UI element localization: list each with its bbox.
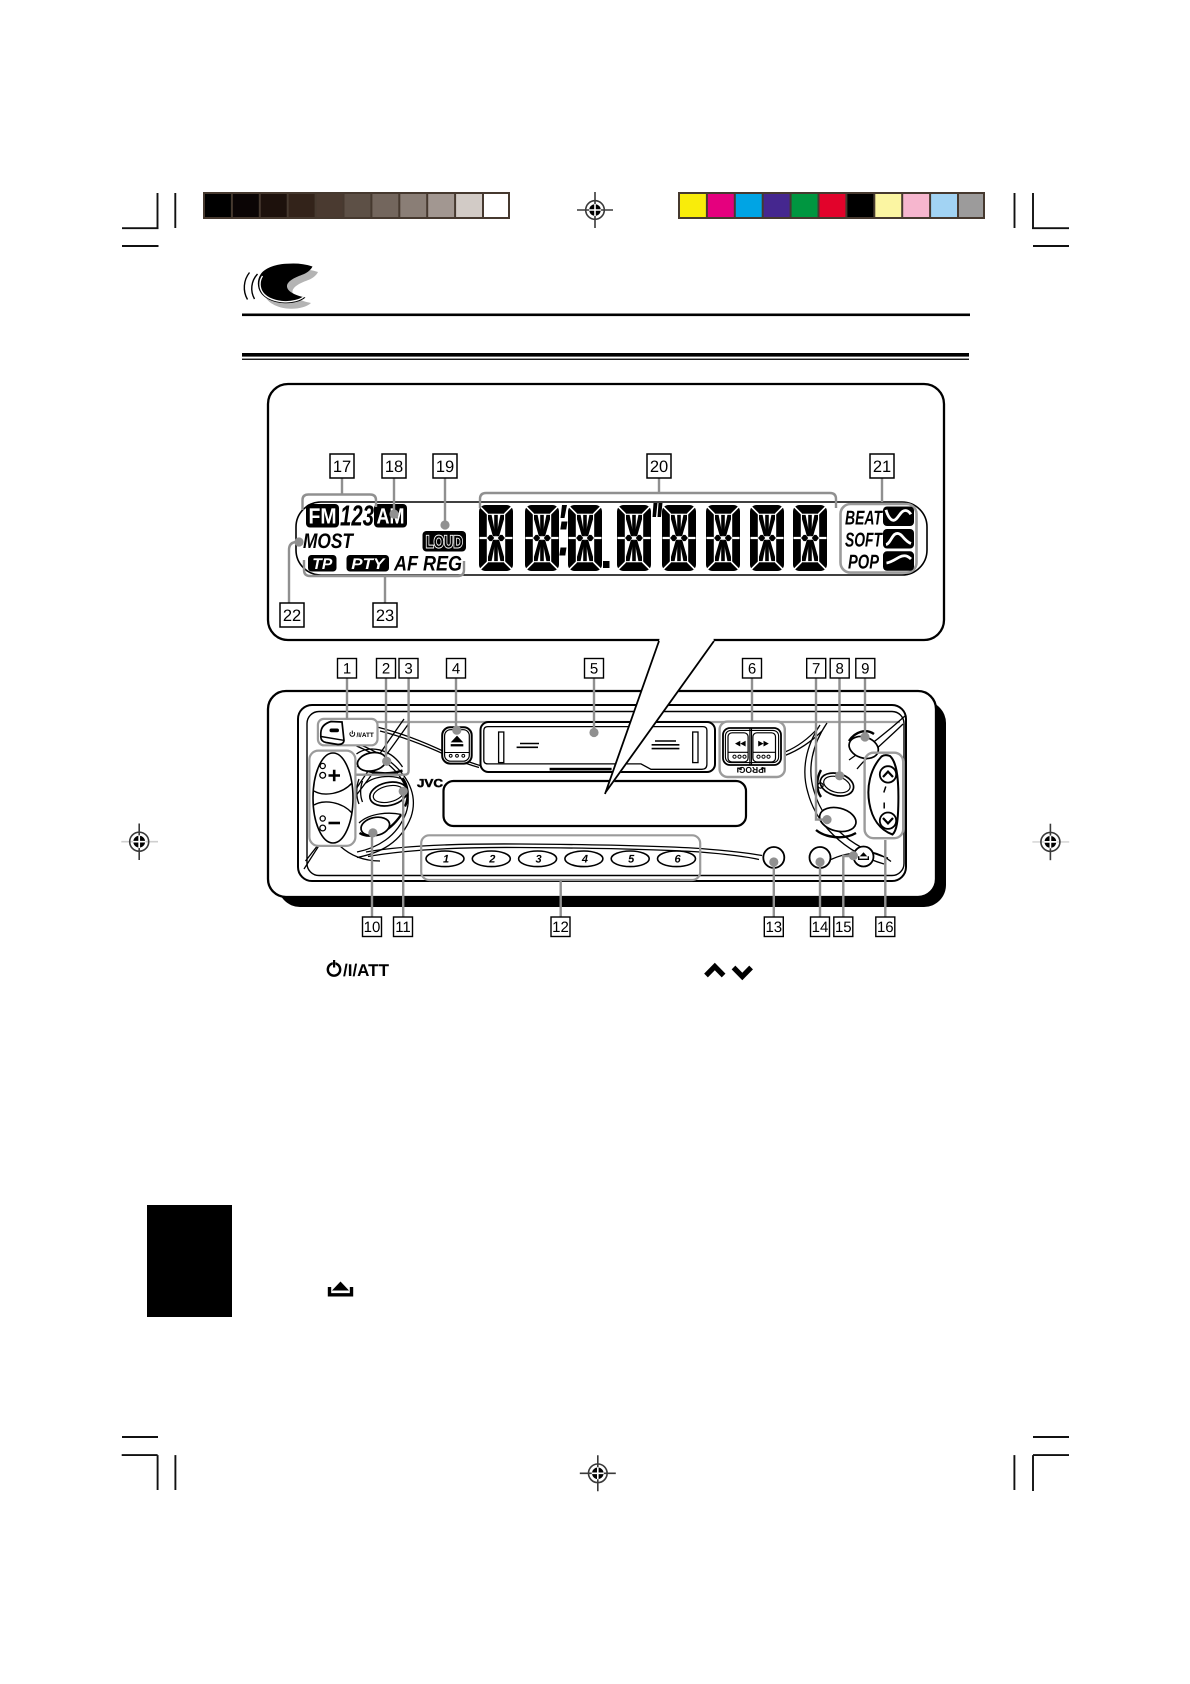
svg-text:13: 13 (765, 919, 782, 936)
svg-text:23: 23 (376, 607, 394, 625)
svg-text:8: 8 (836, 661, 844, 678)
svg-text:5: 5 (628, 854, 635, 866)
svg-text:19: 19 (436, 458, 454, 476)
svg-text:3: 3 (404, 661, 412, 678)
svg-text:PROG: PROG (738, 765, 763, 775)
svg-text:7: 7 (812, 661, 820, 678)
svg-text:AF REG: AF REG (393, 553, 462, 576)
svg-text:20: 20 (650, 458, 668, 476)
svg-text:17: 17 (333, 458, 351, 476)
svg-text:2: 2 (382, 661, 390, 678)
svg-text:/I/ATT: /I/ATT (357, 732, 374, 739)
svg-text:FM: FM (309, 504, 337, 529)
svg-text:11: 11 (395, 919, 411, 936)
svg-text:1: 1 (343, 661, 351, 678)
svg-text:TP: TP (312, 556, 333, 573)
svg-text:BEAT: BEAT (845, 508, 883, 530)
svg-text:PTY: PTY (351, 556, 386, 573)
svg-text:14: 14 (812, 919, 829, 936)
svg-text:SOFT: SOFT (845, 530, 883, 552)
svg-text:2: 2 (488, 854, 495, 866)
svg-text:12: 12 (552, 919, 569, 936)
svg-text:6: 6 (748, 661, 756, 678)
svg-text:POP: POP (848, 552, 879, 574)
svg-text:4: 4 (452, 661, 460, 678)
svg-text:18: 18 (385, 458, 403, 476)
svg-text:6: 6 (674, 854, 681, 866)
svg-text:1: 1 (443, 854, 449, 866)
svg-text:10: 10 (364, 919, 381, 936)
svg-text:22: 22 (283, 607, 301, 625)
svg-text:16: 16 (877, 919, 894, 936)
svg-text:LOUD: LOUD (426, 533, 463, 552)
svg-text:4: 4 (581, 854, 588, 866)
svg-text:MOST: MOST (303, 530, 355, 553)
svg-text:/I/ATT: /I/ATT (343, 961, 390, 980)
svg-text:5: 5 (590, 661, 598, 678)
svg-text:9: 9 (861, 661, 869, 678)
svg-text:JVC: JVC (417, 778, 443, 790)
svg-text:21: 21 (873, 458, 891, 476)
svg-text:3: 3 (536, 854, 542, 866)
svg-text:15: 15 (835, 919, 852, 936)
svg-text:123: 123 (340, 501, 374, 533)
